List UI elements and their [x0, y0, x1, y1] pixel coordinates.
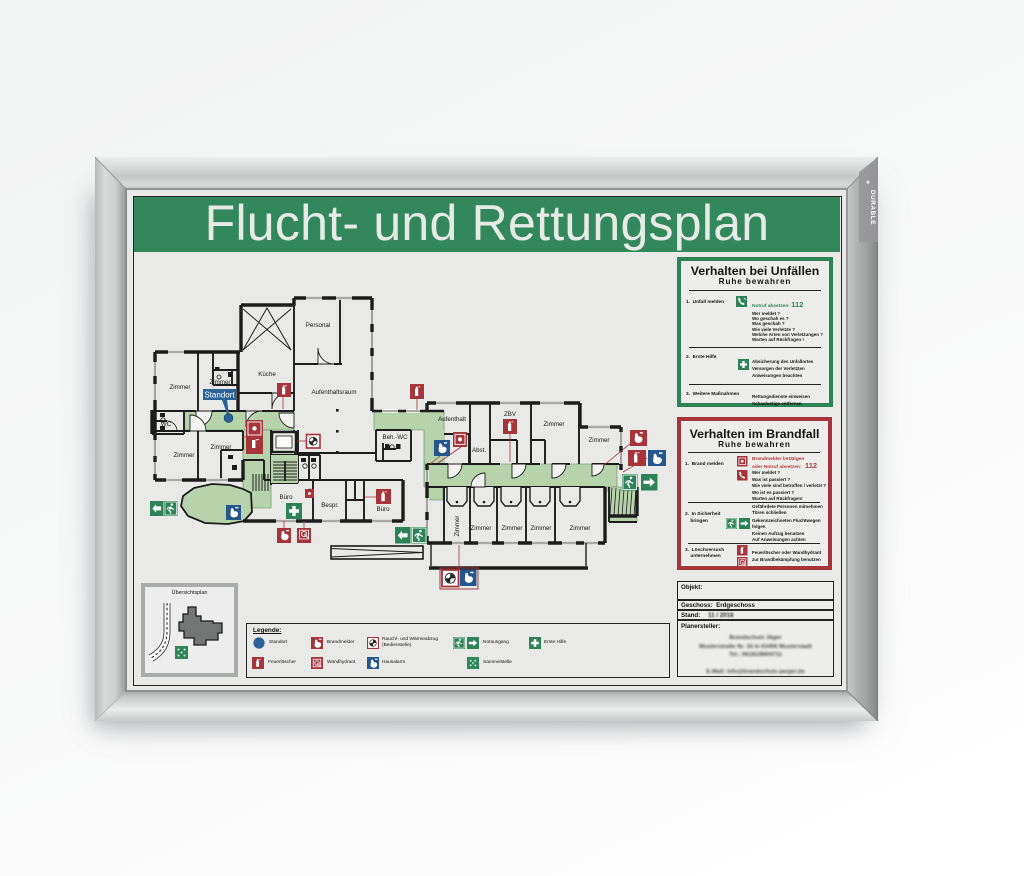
- svg-text:Küche: Küche: [258, 371, 276, 378]
- svg-text:Zimmer: Zimmer: [471, 525, 492, 532]
- svg-text:Zimmer: Zimmer: [531, 525, 552, 532]
- svg-text:Zimmer: Zimmer: [502, 525, 523, 532]
- svg-text:Standort: Standort: [204, 391, 235, 400]
- svg-text:Aufenthaltsraum: Aufenthaltsraum: [311, 389, 356, 396]
- svg-text:Büro: Büro: [279, 494, 293, 501]
- svg-text:Beh.-WC: Beh.-WC: [382, 434, 408, 441]
- svg-text:Zimmer: Zimmer: [544, 421, 565, 428]
- svg-text:Zimmer: Zimmer: [454, 516, 461, 537]
- svg-text:Bespr.: Bespr.: [321, 502, 339, 509]
- svg-text:Zimmer: Zimmer: [570, 525, 591, 532]
- svg-text:ZBV: ZBV: [504, 411, 517, 418]
- svg-text:Abst.: Abst.: [472, 447, 486, 454]
- svg-text:Zimmer: Zimmer: [174, 452, 195, 459]
- svg-text:Zimmer: Zimmer: [170, 384, 191, 391]
- svg-text:Zimmer: Zimmer: [589, 437, 610, 444]
- svg-text:Personal: Personal: [306, 322, 330, 329]
- svg-text:Büro: Büro: [376, 506, 390, 513]
- svg-text:Aufenthalt: Aufenthalt: [438, 416, 466, 423]
